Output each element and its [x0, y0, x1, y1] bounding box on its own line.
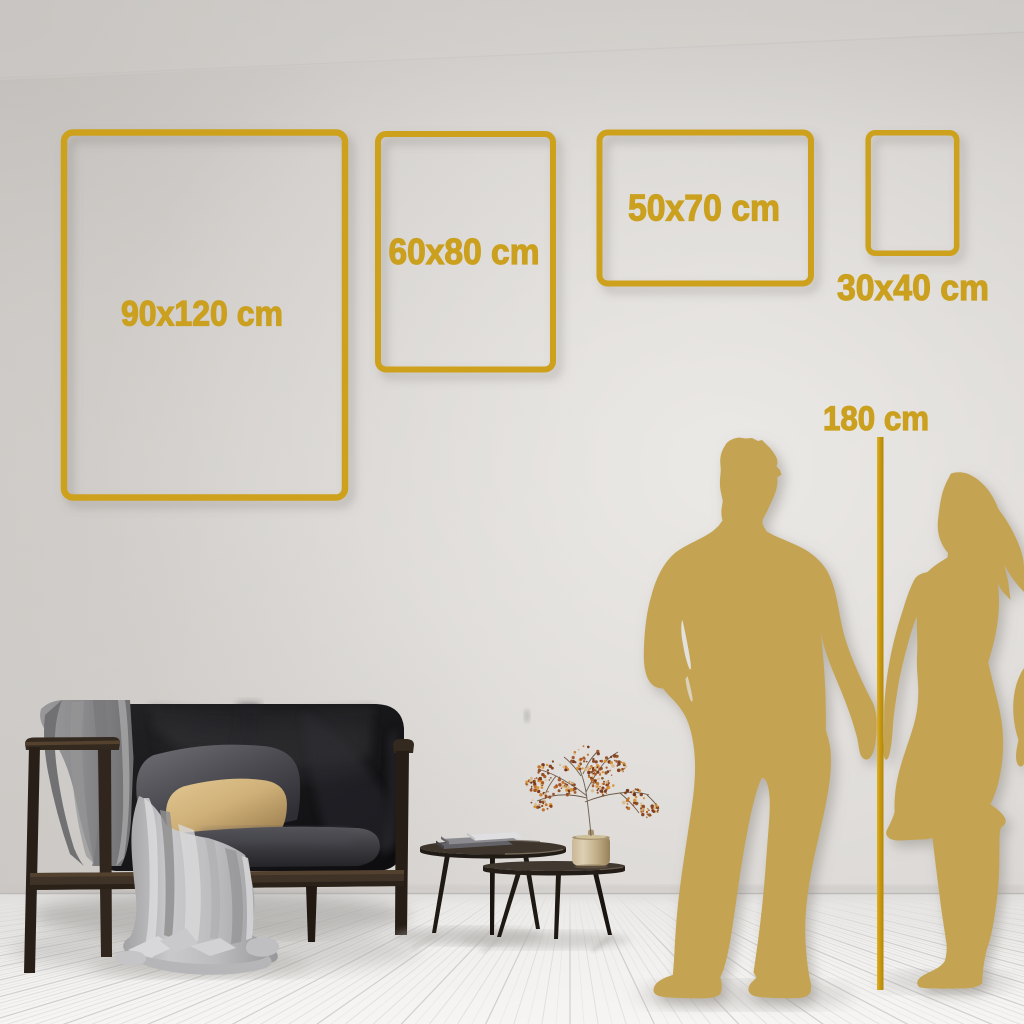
- svg-text:50x70 cm: 50x70 cm: [628, 188, 780, 229]
- svg-text:180 cm: 180 cm: [823, 400, 929, 438]
- svg-text:90x120 cm: 90x120 cm: [121, 295, 283, 334]
- svg-text:60x80 cm: 60x80 cm: [389, 231, 540, 272]
- svg-text:30x40 cm: 30x40 cm: [837, 267, 989, 308]
